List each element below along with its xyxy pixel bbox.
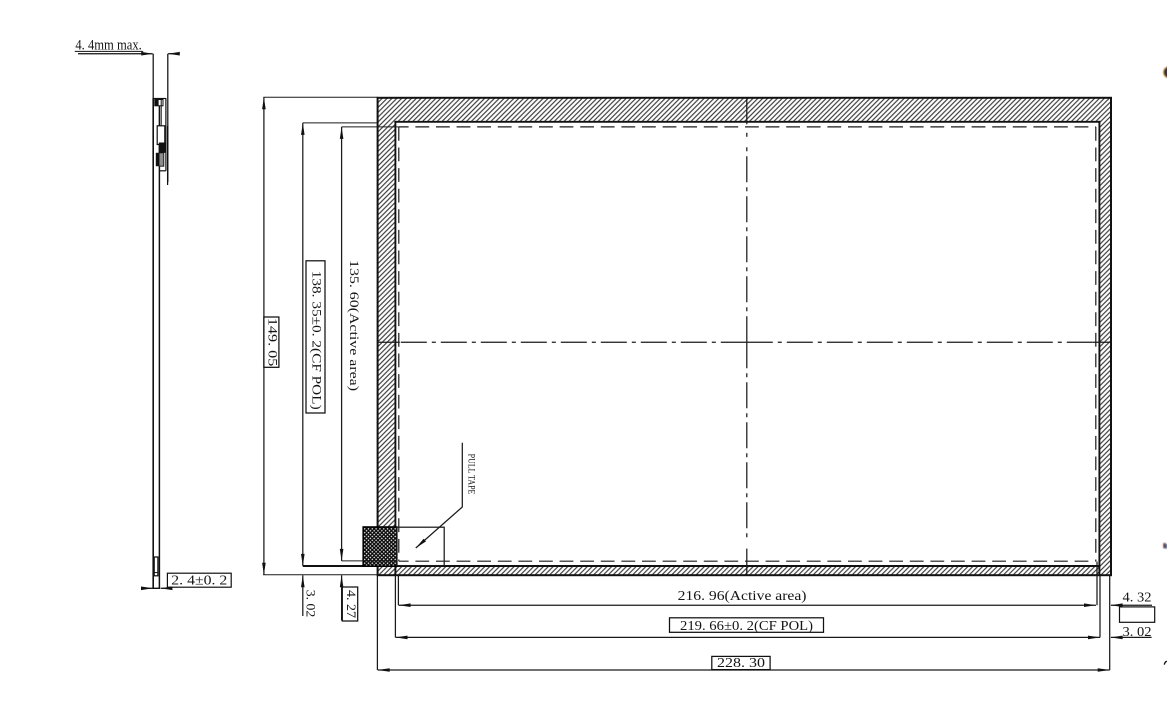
svg-text:3. 02: 3. 02 (1123, 625, 1152, 640)
svg-text:3. 02: 3. 02 (304, 590, 319, 618)
svg-text:149. 05: 149. 05 (266, 318, 281, 367)
svg-text:4. 32: 4. 32 (1123, 591, 1152, 606)
svg-text:228. 30: 228. 30 (717, 656, 765, 671)
svg-text:219. 66±0. 2(CF POL): 219. 66±0. 2(CF POL) (680, 619, 813, 634)
svg-text:2. 4±0. 2: 2. 4±0. 2 (171, 573, 227, 588)
svg-text:138. 35±0. 2(CF POL): 138. 35±0. 2(CF POL) (310, 271, 325, 410)
svg-text:135. 60(Active area): 135. 60(Active area) (347, 260, 362, 391)
svg-text:PULL TAPE: PULL TAPE (465, 454, 475, 495)
svg-text:216. 96(Active area): 216. 96(Active area) (678, 589, 807, 604)
svg-text:4. 27: 4. 27 (344, 590, 359, 619)
